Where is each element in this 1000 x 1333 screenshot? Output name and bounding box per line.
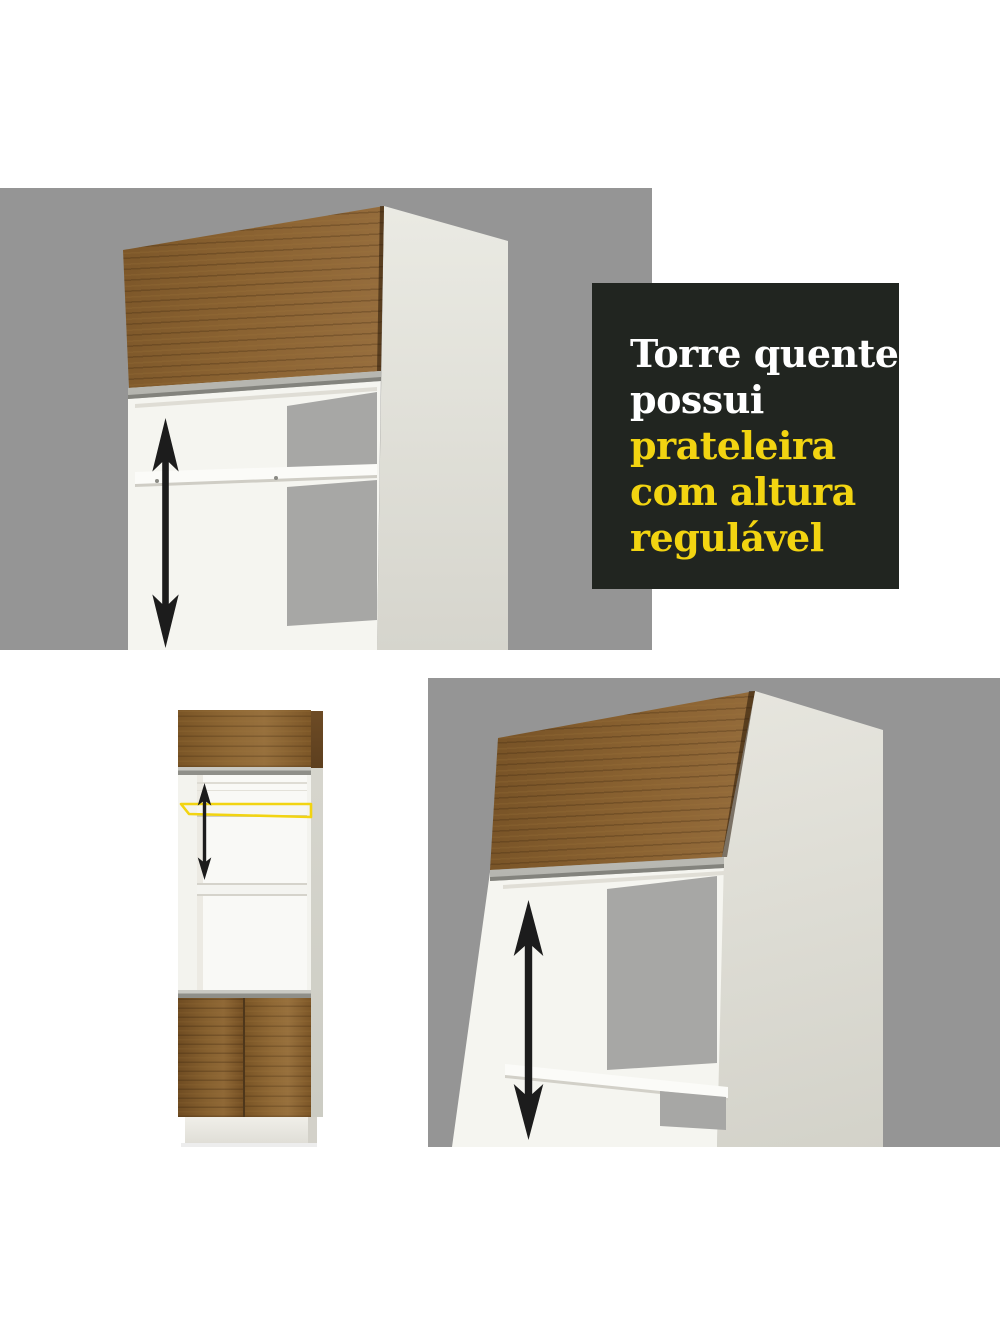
wood-door-lower-right: [245, 998, 311, 1117]
double-arrow-vertical-icon: [196, 783, 213, 880]
double-arrow-vertical-icon: [510, 900, 547, 1140]
info-line: Torre quente: [630, 331, 885, 377]
wood-door-side-edge: [311, 711, 323, 768]
info-line-highlight: regulável: [630, 515, 885, 561]
wood-door-lower-left: [178, 998, 243, 1117]
wood-door-top: [178, 710, 311, 767]
door-gap: [243, 998, 245, 1117]
plinth-side: [308, 1117, 317, 1143]
info-line-highlight: prateleira: [630, 423, 885, 469]
info-text-panel: Torre quente possui prateleira com altur…: [592, 283, 899, 589]
info-line: possui: [630, 377, 885, 423]
fixed-shelf: [197, 883, 307, 896]
cabinet-side-panel: [311, 711, 323, 1117]
info-line-highlight: com altura: [630, 469, 885, 515]
detail-photo-panel-bottom-right: [428, 678, 1000, 1147]
aluminum-profile: [178, 767, 311, 775]
niche-ceiling-shadow: [197, 782, 307, 784]
aluminum-profile: [178, 990, 311, 998]
niche-rail-line: [197, 790, 307, 791]
shelf-pin: [274, 476, 278, 480]
plinth-base: [185, 1117, 308, 1143]
detail-photo-panel-top-left: [0, 188, 652, 650]
double-arrow-vertical-icon: [149, 418, 182, 648]
product-infographic: Torre quente possui prateleira com altur…: [0, 0, 1000, 1333]
floor-shadow: [181, 1143, 317, 1147]
tower-cabinet-front-view: [177, 707, 323, 1147]
